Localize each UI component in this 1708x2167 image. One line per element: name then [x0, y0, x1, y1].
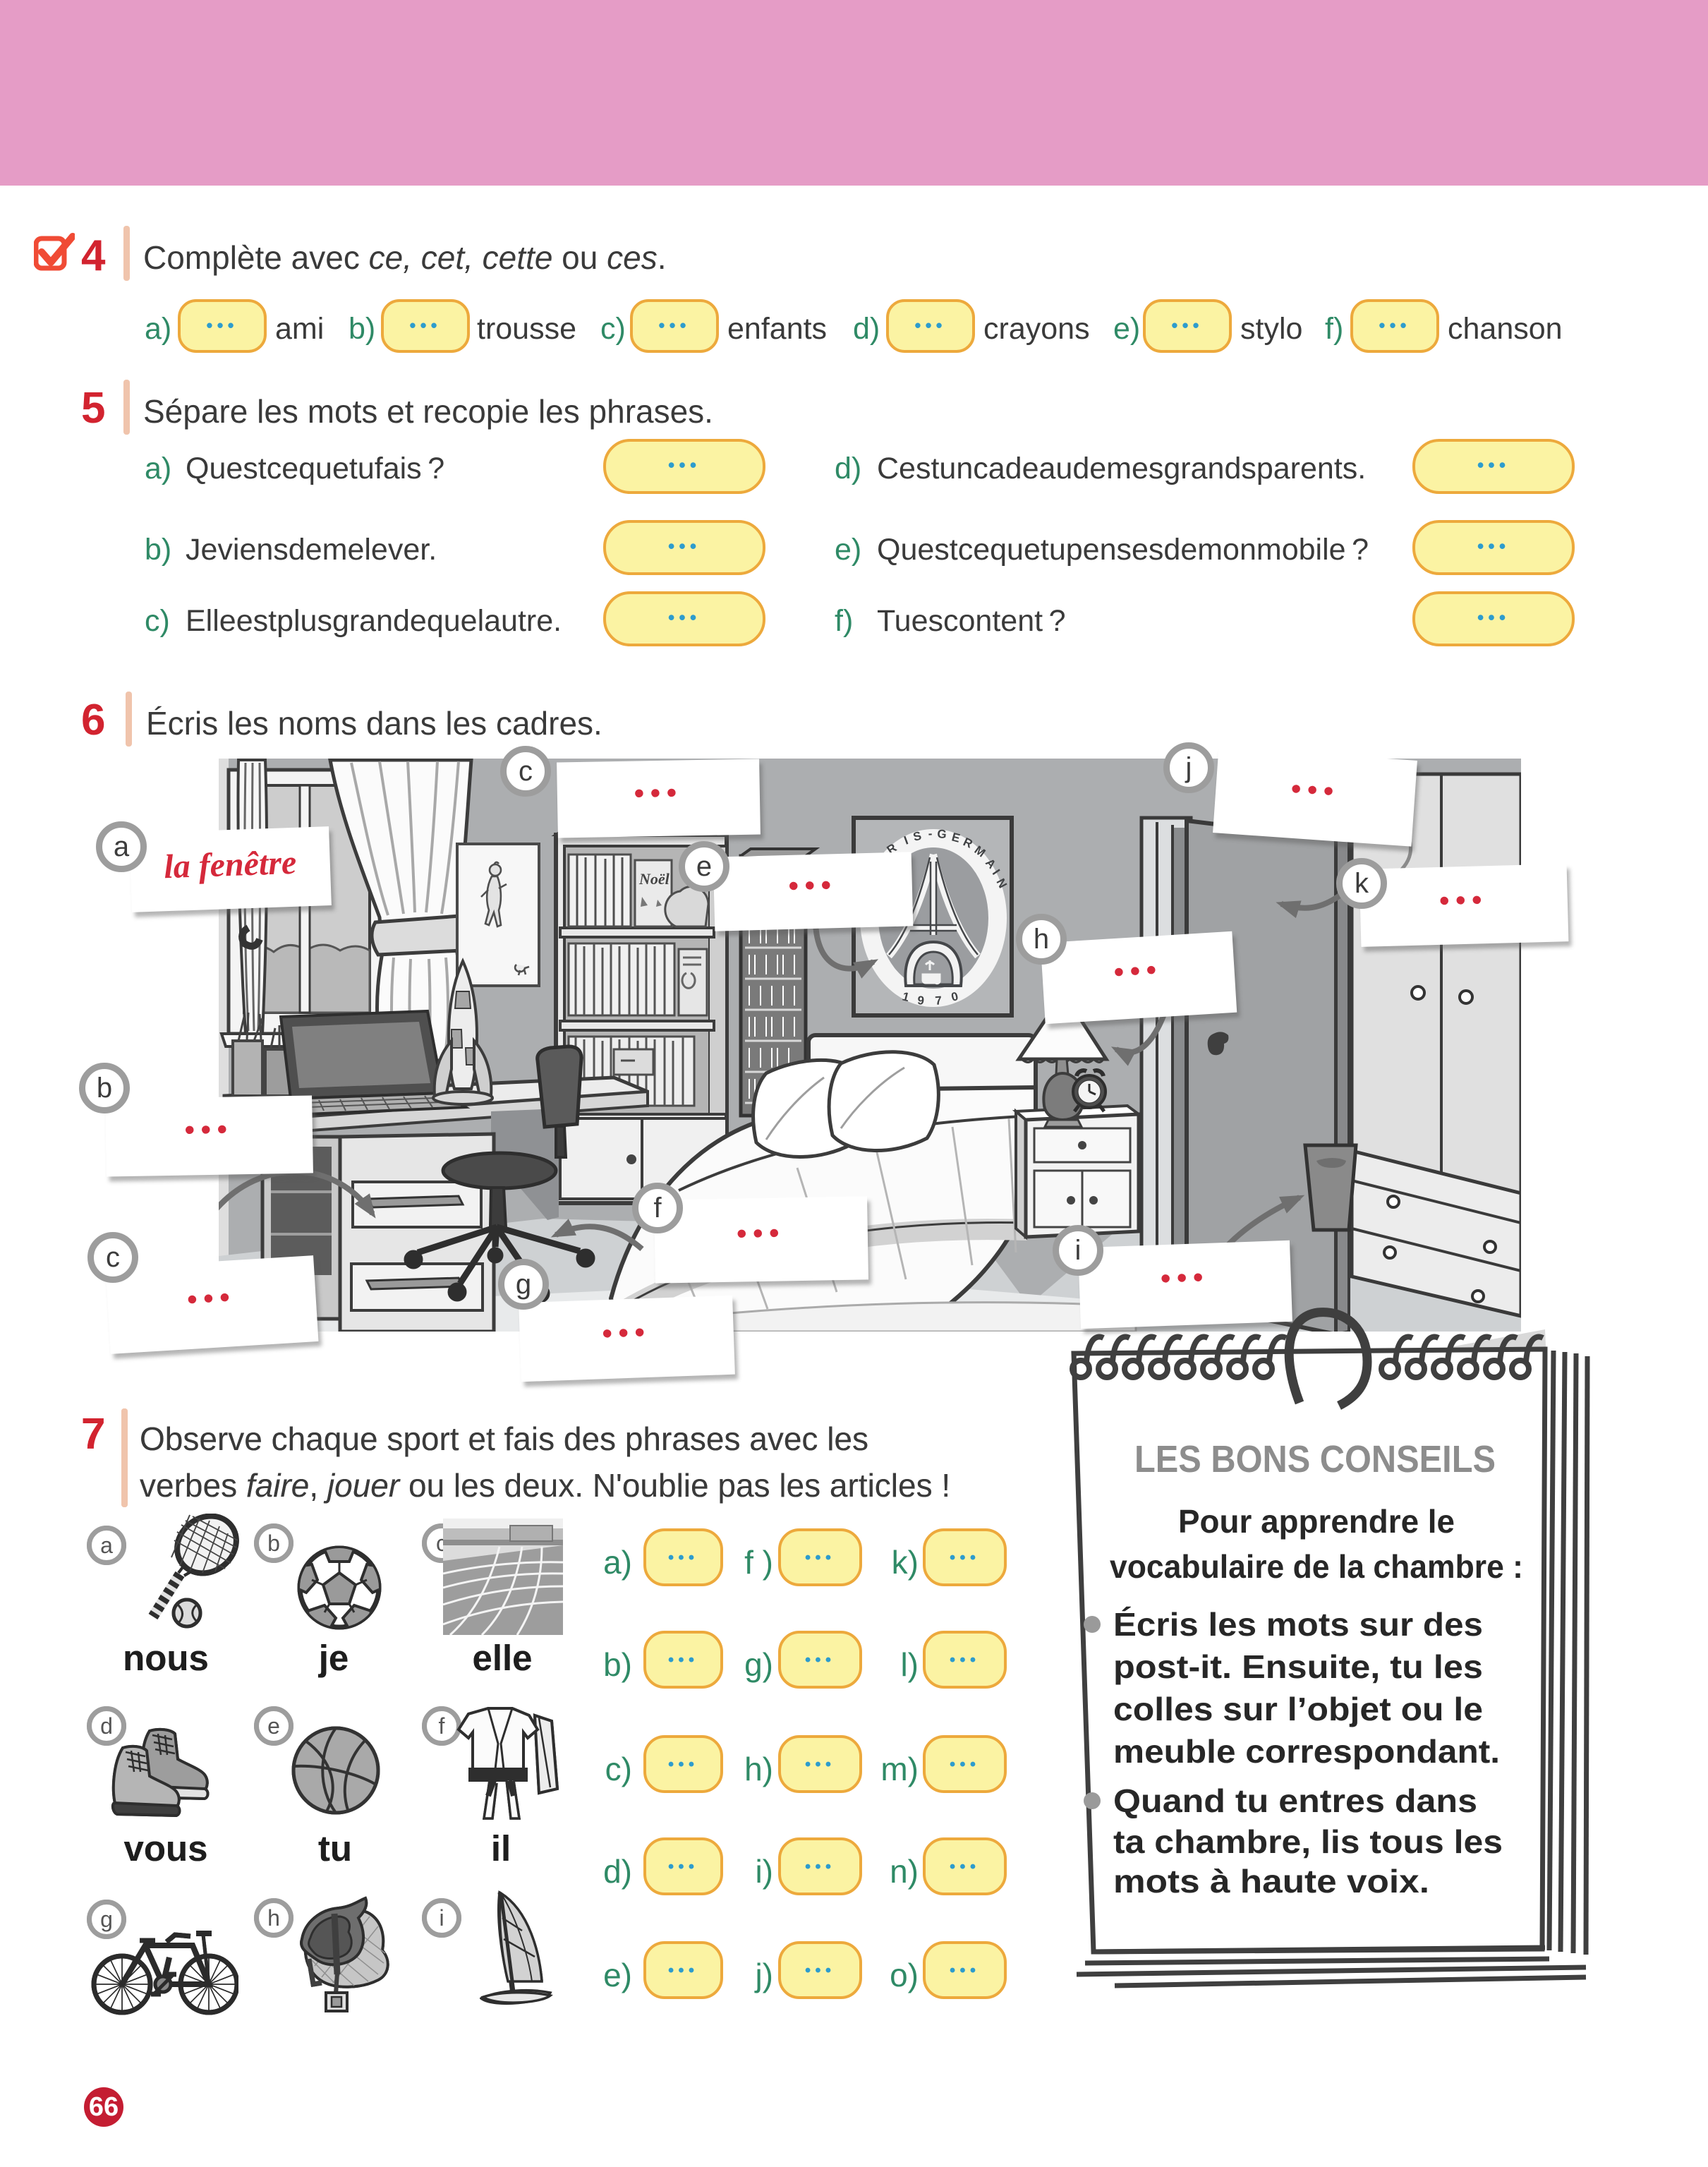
svg-text:Écris les mots sur des: Écris les mots sur des	[1113, 1606, 1483, 1643]
svg-text:mots à haute voix.: mots à haute voix.	[1113, 1863, 1429, 1900]
svg-text:vocabulaire de la chambre :: vocabulaire de la chambre :	[1110, 1548, 1523, 1585]
svg-text:Pour apprendre le: Pour apprendre le	[1178, 1503, 1455, 1540]
svg-text:9: 9	[917, 994, 925, 1008]
svg-text:LES BONS CONSEILS: LES BONS CONSEILS	[1134, 1438, 1496, 1480]
svg-text:Quand tu entres dans: Quand tu entres dans	[1113, 1782, 1477, 1819]
svg-text:G: G	[937, 827, 947, 841]
svg-text:7: 7	[935, 994, 943, 1008]
svg-text:meuble correspondant.: meuble correspondant.	[1113, 1733, 1500, 1770]
svg-text:Noël: Noël	[638, 870, 670, 888]
svg-text:post-it. Ensuite, tu les: post-it. Ensuite, tu les	[1113, 1648, 1483, 1685]
svg-text:ta chambre, lis tous les: ta chambre, lis tous les	[1113, 1823, 1503, 1860]
svg-text:colles sur l’objet ou le: colles sur l’objet ou le	[1113, 1691, 1483, 1727]
svg-text:-: -	[928, 827, 933, 840]
